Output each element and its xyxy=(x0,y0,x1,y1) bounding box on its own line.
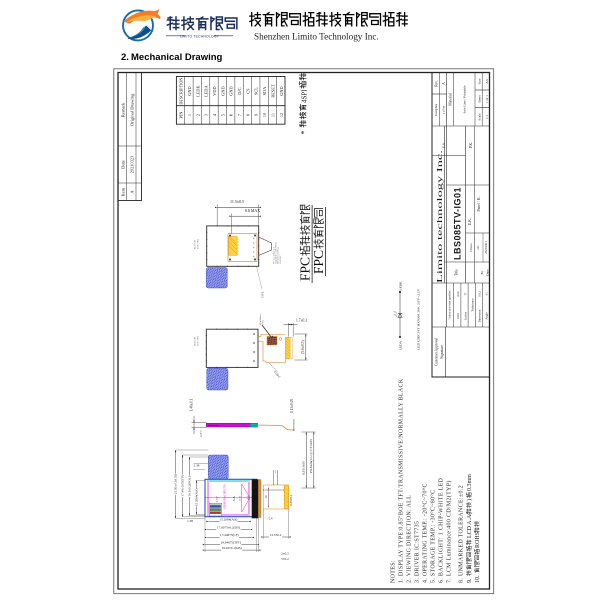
svg-text:F.A.: F.A. xyxy=(442,142,446,148)
svg-text:Strengthen: Strengthen xyxy=(435,103,438,116)
svg-text:FPC: FPC xyxy=(311,250,326,274)
svg-text:NOTES:: NOTES: xyxy=(391,560,397,583)
svg-text:E.K.: E.K. xyxy=(468,218,472,225)
svg-text:19.02±0.1(GB): 19.02±0.1(GB) xyxy=(222,546,242,550)
svg-text:11.5±0.5: 11.5±0.5 xyxy=(230,199,244,204)
svg-text:Drawn: Drawn xyxy=(469,243,473,252)
svg-text:BOE-018: BOE-018 xyxy=(195,336,197,346)
svg-text:8: 8 xyxy=(245,114,250,116)
svg-text:4: 4 xyxy=(212,113,217,116)
svg-text:16.9±0.2(POL): 16.9±0.2(POL) xyxy=(188,476,192,496)
svg-text:2. VIEWING DIRECTION: ALL: 2. VIEWING DIRECTION: ALL xyxy=(407,495,413,583)
svg-text:7. LCM Luminance:400 CD/M2(TYP: 7. LCM Luminance:400 CD/M2(TYP) xyxy=(446,480,453,583)
svg-text:TAPE: TAPE xyxy=(262,291,265,298)
svg-text:AA: AA xyxy=(246,496,249,500)
svg-text:0.35±0.05: 0.35±0.05 xyxy=(302,461,306,475)
svg-text:BOE-018: BOE-018 xyxy=(195,239,197,249)
svg-text:11: 11 xyxy=(270,113,275,117)
svg-text:LED CIRCUIT HX8368 200, 3.0V~3: LED CIRCUIT HX8368 200, 3.0V~3.1V xyxy=(416,288,421,350)
svg-text:GND: GND xyxy=(187,86,192,95)
svg-text:A3: A3 xyxy=(485,79,489,83)
svg-text:1 of 1: 1 of 1 xyxy=(485,95,489,103)
svg-text:19.94875(TFT): 19.94875(TFT) xyxy=(221,540,241,544)
svg-text:Sole Line / Printable: Sole Line / Printable xyxy=(463,85,467,113)
svg-text:(0.85 TFT): (0.85 TFT) xyxy=(197,239,200,249)
svg-text:Surface: Surface xyxy=(464,311,467,320)
svg-text:SDA: SDA xyxy=(262,86,267,95)
svg-text:Panel / K.: Panel / K. xyxy=(477,196,481,211)
svg-text:Date: Date xyxy=(486,269,490,276)
svg-text:t=0.3: t=0.3 xyxy=(262,319,265,325)
svg-text:Dimension: Dimension xyxy=(478,309,482,322)
svg-text:ROHS: ROHS xyxy=(475,532,481,548)
svg-text:13.5±0.2: 13.5±0.2 xyxy=(270,533,282,537)
svg-text:GND: GND xyxy=(220,86,225,95)
svg-text:±0.2: ±0.2 xyxy=(478,291,482,297)
svg-text:0.45±0.2: 0.45±0.2 xyxy=(289,494,293,506)
svg-text:3. DRIVER IC:ST7735: 3. DRIVER IC:ST7735 xyxy=(415,521,421,583)
svg-text:Sheet: Sheet xyxy=(478,95,482,103)
svg-text:3: 3 xyxy=(204,114,209,116)
svg-text:VDD: VDD xyxy=(212,86,217,95)
svg-text:LBS085TV-IG01: LBS085TV-IG01 xyxy=(453,187,463,260)
svg-text:0.05: 0.05 xyxy=(200,429,203,434)
svg-text:128(RGB)x128DOTS: 128(RGB)x128DOTS xyxy=(223,484,227,509)
svg-text:17.46±0.05(TP): 17.46±0.05(TP) xyxy=(181,475,185,496)
svg-text:10: 10 xyxy=(264,495,268,499)
svg-text:Limito technology Inc.: Limito technology Inc. xyxy=(435,150,444,283)
svg-text:5.4: 5.4 xyxy=(269,517,273,521)
svg-text:Rev.: Rev. xyxy=(434,80,438,87)
svg-text:17.44875(CF): 17.44875(CF) xyxy=(220,533,239,537)
svg-text:Shenzhen Limito Technology Inc: Shenzhen Limito Technology Inc. xyxy=(254,32,379,42)
svg-text:1: 1 xyxy=(187,114,192,116)
svg-text:10.: 10. xyxy=(475,575,481,583)
svg-text:8. UNMARKED TOLERANCE:±0.2: 8. UNMARKED TOLERANCE:±0.2 xyxy=(459,485,465,583)
svg-text:17.0075±0.2(OS): 17.0075±0.2(OS) xyxy=(217,525,240,529)
svg-text:DESCRIPTION: DESCRIPTION xyxy=(179,78,184,105)
svg-text:6: 6 xyxy=(229,113,234,116)
svg-text:Title: Title xyxy=(455,269,459,276)
svg-text:LEDK: LEDK xyxy=(399,281,403,291)
svg-text:Scale: Scale xyxy=(478,113,482,121)
svg-text:0.3mm: 0.3mm xyxy=(467,474,473,491)
svg-text:4SPI: 4SPI xyxy=(301,89,308,103)
svg-text:2-R0.4: 2-R0.4 xyxy=(273,370,282,379)
svg-text:12: 12 xyxy=(279,113,284,117)
svg-text:Remark: Remark xyxy=(121,102,126,117)
svg-text:4. OPERATING TEMP.: -20°C~70: 4. OPERATING TEMP.: -20°C~70°C xyxy=(422,483,429,583)
svg-text:1: 1 xyxy=(275,470,277,474)
svg-text:P0.3mm(12-1)=7.3±0.05: P0.3mm(12-1)=7.3±0.05 xyxy=(309,439,313,473)
svg-text:±1: ±1 xyxy=(485,292,489,296)
svg-text:LEDA: LEDA xyxy=(399,340,403,350)
svg-text:LIMITO TECHNOLOGY: LIMITO TECHNOLOGY xyxy=(180,35,220,39)
svg-text:20210001: 20210001 xyxy=(484,241,488,254)
svg-text:LEDA: LEDA xyxy=(204,84,209,96)
svg-text:LCD A.A(: LCD A.A( xyxy=(466,513,473,538)
svg-text:1.38: 1.38 xyxy=(187,519,193,523)
svg-text:8.8 MAX: 8.8 MAX xyxy=(245,208,260,213)
svg-text:Customer Approval: Customer Approval xyxy=(435,338,439,366)
svg-text:1. DISPLAY TYPE:0.85"BOE TFT/T: 1. DISPLAY TYPE:0.85"BOE TFT/TRANSMISSIV… xyxy=(399,378,405,583)
svg-text:LEDK: LEDK xyxy=(195,84,200,96)
svg-text:CS: CS xyxy=(245,88,250,94)
svg-text:LU: LU xyxy=(476,245,480,250)
svg-text:10: 10 xyxy=(262,113,267,117)
svg-text:RESET: RESET xyxy=(270,84,275,98)
svg-text:Angle: Angle xyxy=(485,312,489,320)
svg-text:Unless otherwise specified: Unless otherwise specified xyxy=(449,290,452,319)
svg-text:2.: 2. xyxy=(121,52,129,63)
svg-text:*: * xyxy=(300,131,309,135)
svg-text:21.50±0.1(CB): 21.50±0.1(CB) xyxy=(174,474,178,494)
svg-text:Mechanical Drawing: Mechanical Drawing xyxy=(131,52,223,63)
svg-text:1:1: 1:1 xyxy=(485,115,489,120)
svg-text:5: 5 xyxy=(220,114,225,116)
svg-text:6. BACKLIGHT: 1 CHIP-WHITE LED: 6. BACKLIGHT: 1 CHIP-WHITE LED xyxy=(439,477,445,583)
svg-text:SCL: SCL xyxy=(254,87,259,95)
svg-text:9: 9 xyxy=(254,114,259,116)
svg-text:9.: 9. xyxy=(467,578,473,583)
svg-text:15.2084(AA): 15.2084(AA) xyxy=(220,517,238,521)
svg-text:PIN: PIN xyxy=(179,112,184,119)
svg-text:(5.6±0.5): (5.6±0.5) xyxy=(301,340,305,354)
svg-text:15.2084(AA): 15.2084(AA) xyxy=(195,489,199,507)
svg-text:5±0.2: 5±0.2 xyxy=(281,557,289,561)
svg-text:GND: GND xyxy=(279,86,284,95)
svg-text:GND: GND xyxy=(229,86,234,95)
svg-text:0.13±0.05: 0.13±0.05 xyxy=(290,399,294,414)
svg-text:2±0.2: 2±0.2 xyxy=(281,552,289,556)
svg-text:Unit: Unit xyxy=(456,313,460,319)
svg-text:Original Drawing: Original Drawing xyxy=(130,93,135,126)
svg-text:1.38: 1.38 xyxy=(194,464,200,468)
svg-text:A: A xyxy=(442,82,446,85)
svg-text:1.46±0.1: 1.46±0.1 xyxy=(190,398,194,411)
svg-text:Signature: Signature xyxy=(440,345,444,359)
svg-text:a.st*on: a.st*on xyxy=(443,105,446,114)
svg-text:5. STORAGE TEMP.: -30°C~80°C: 5. STORAGE TEMP.: -30°C~80°C xyxy=(430,490,437,583)
svg-text:(0.85 TFT): (0.85 TFT) xyxy=(197,336,200,346)
svg-text:ADH BKT *: ADH BKT * xyxy=(279,254,282,264)
svg-text:P.K.: P.K. xyxy=(469,142,473,148)
svg-text:A.A: A.A xyxy=(232,495,236,501)
svg-text:): ) xyxy=(466,499,473,501)
svg-text:D/C: D/C xyxy=(237,87,242,94)
svg-text:Size: Size xyxy=(478,78,482,84)
svg-text:1.7±0.3: 1.7±0.3 xyxy=(296,319,307,323)
svg-text:Tolerance: Tolerance xyxy=(471,298,475,312)
svg-text:20210323: 20210323 xyxy=(130,155,135,173)
svg-text:Item: Item xyxy=(121,187,126,196)
svg-text:By: By xyxy=(480,270,484,274)
svg-text:Date: Date xyxy=(121,160,126,169)
svg-text:Material: Material xyxy=(449,93,453,105)
svg-text:mm: mm xyxy=(456,291,460,296)
svg-text:A: A xyxy=(130,190,135,194)
svg-text:▽: ▽ xyxy=(464,291,468,295)
svg-text:2: 2 xyxy=(195,114,200,116)
svg-text:7: 7 xyxy=(237,113,242,116)
svg-text:12:00: 12:00 xyxy=(239,495,242,501)
svg-text:0.55": 0.55" xyxy=(215,495,219,502)
